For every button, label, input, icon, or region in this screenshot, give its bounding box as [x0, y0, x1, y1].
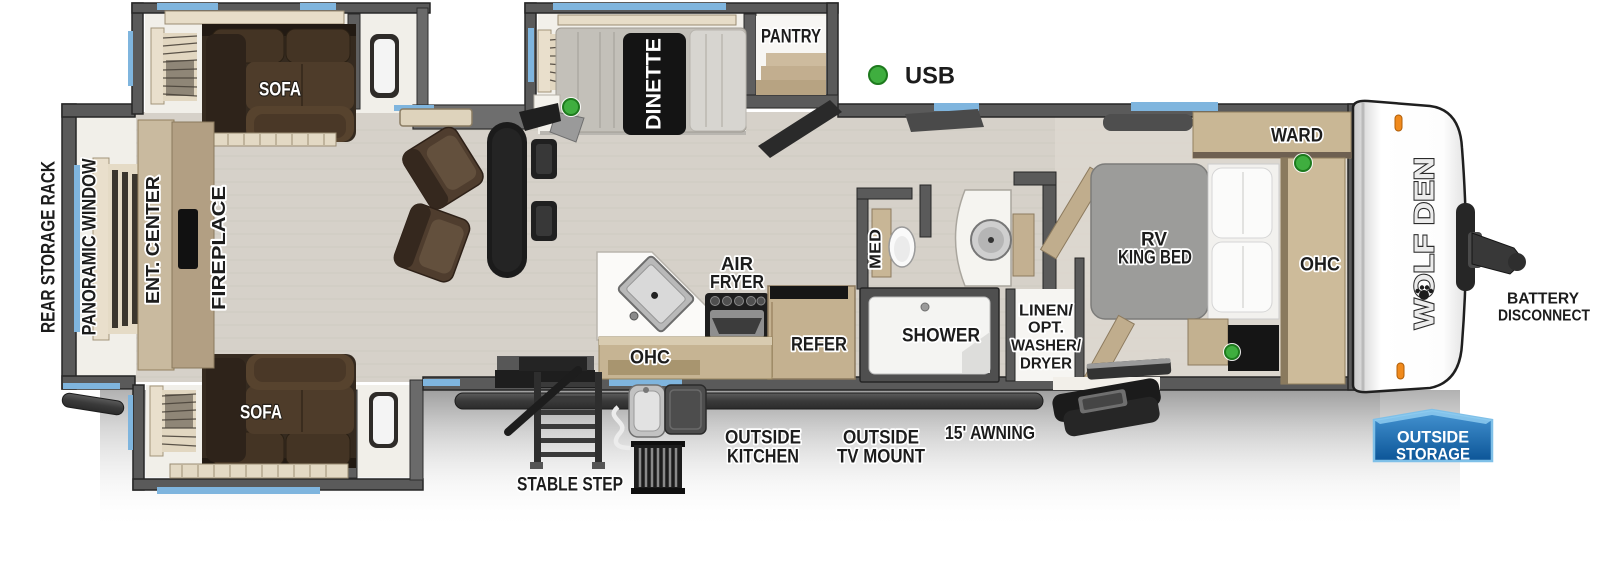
svg-text:SHOWER: SHOWER [902, 326, 980, 347]
svg-text:OHC: OHC [630, 348, 670, 369]
svg-text:OUTSIDE: OUTSIDE [725, 428, 801, 449]
svg-text:OPT.: OPT. [1028, 320, 1064, 337]
svg-text:REFER: REFER [791, 335, 847, 356]
svg-text:STABLE STEP: STABLE STEP [517, 475, 623, 496]
svg-text:MED: MED [868, 229, 885, 269]
svg-text:ENT. CENTER: ENT. CENTER [143, 176, 163, 304]
svg-text:LINEN/: LINEN/ [1019, 303, 1074, 320]
svg-text:OUTSIDE: OUTSIDE [843, 428, 919, 449]
svg-text:DISCONNECT: DISCONNECT [1498, 308, 1590, 325]
svg-text:FIREPLACE: FIREPLACE [209, 186, 229, 310]
svg-text:DINETTE: DINETTE [643, 38, 666, 130]
svg-text:WASHER/: WASHER/ [1011, 338, 1082, 355]
svg-text:OHC: OHC [1300, 255, 1340, 276]
svg-text:STORAGE: STORAGE [1396, 445, 1470, 464]
svg-text:BATTERY: BATTERY [1507, 291, 1580, 308]
svg-text:KING BED: KING BED [1118, 248, 1192, 269]
svg-text:TV MOUNT: TV MOUNT [837, 447, 925, 468]
svg-text:AIR: AIR [721, 254, 753, 274]
svg-text:KITCHEN: KITCHEN [727, 447, 799, 468]
svg-text:SOFA: SOFA [259, 80, 301, 101]
svg-text:PANORAMIC WINDOW: PANORAMIC WINDOW [80, 158, 101, 335]
svg-text:WOLF DEN: WOLF DEN [1409, 157, 1440, 329]
svg-text:USB: USB [905, 63, 955, 90]
svg-text:15' AWNING: 15' AWNING [945, 423, 1035, 443]
svg-text:SOFA: SOFA [240, 403, 282, 424]
svg-text:WARD: WARD [1271, 126, 1323, 147]
svg-text:PANTRY: PANTRY [761, 27, 821, 48]
svg-text:REAR STORAGE RACK: REAR STORAGE RACK [39, 161, 60, 333]
svg-text:DRYER: DRYER [1020, 356, 1072, 373]
svg-text:FRYER: FRYER [710, 272, 764, 292]
